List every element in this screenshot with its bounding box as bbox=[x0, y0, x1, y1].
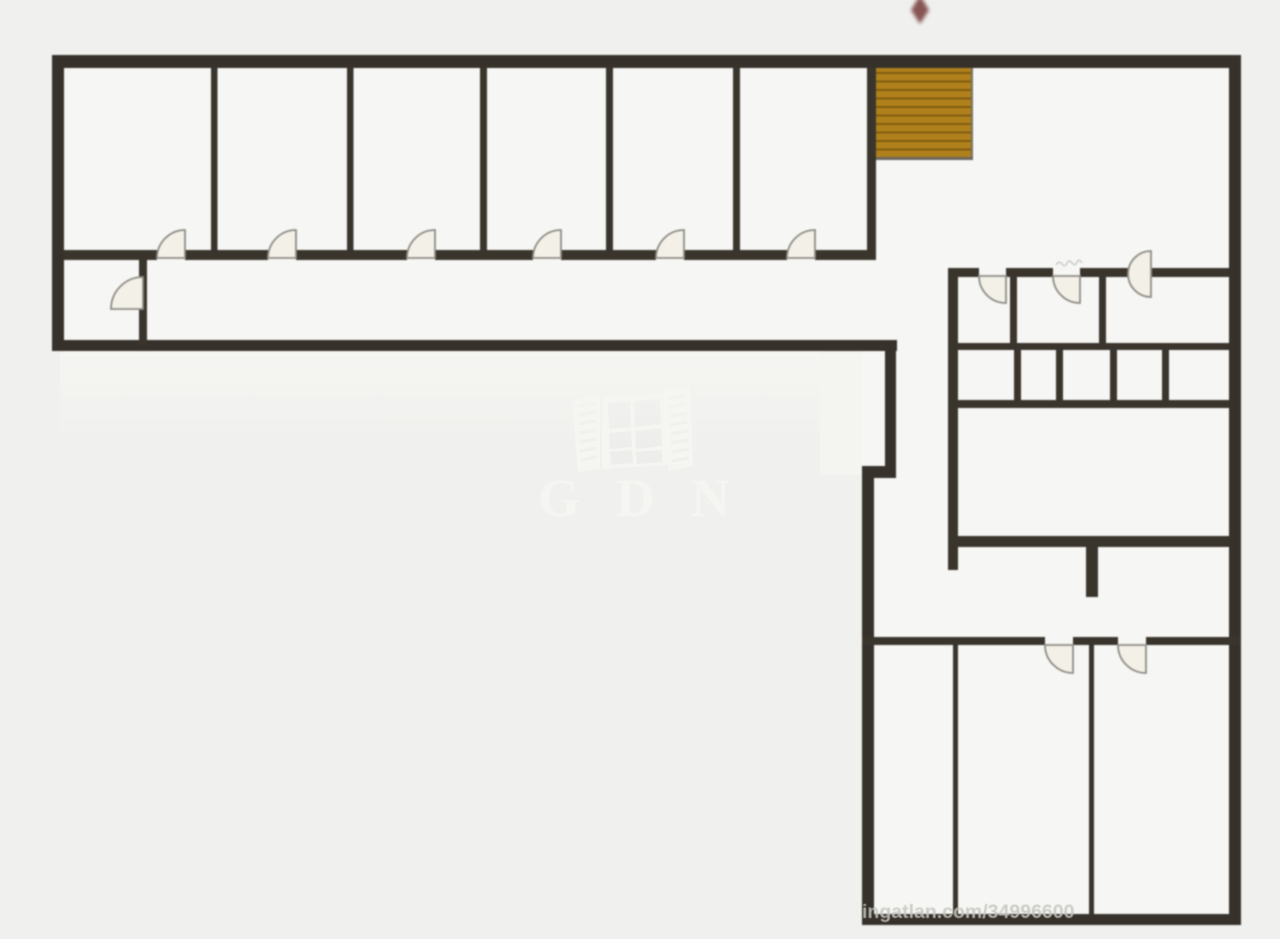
svg-text:GDN: GDN bbox=[538, 468, 766, 528]
svg-text:ingatlan.com/34996600: ingatlan.com/34996600 bbox=[862, 901, 1075, 923]
